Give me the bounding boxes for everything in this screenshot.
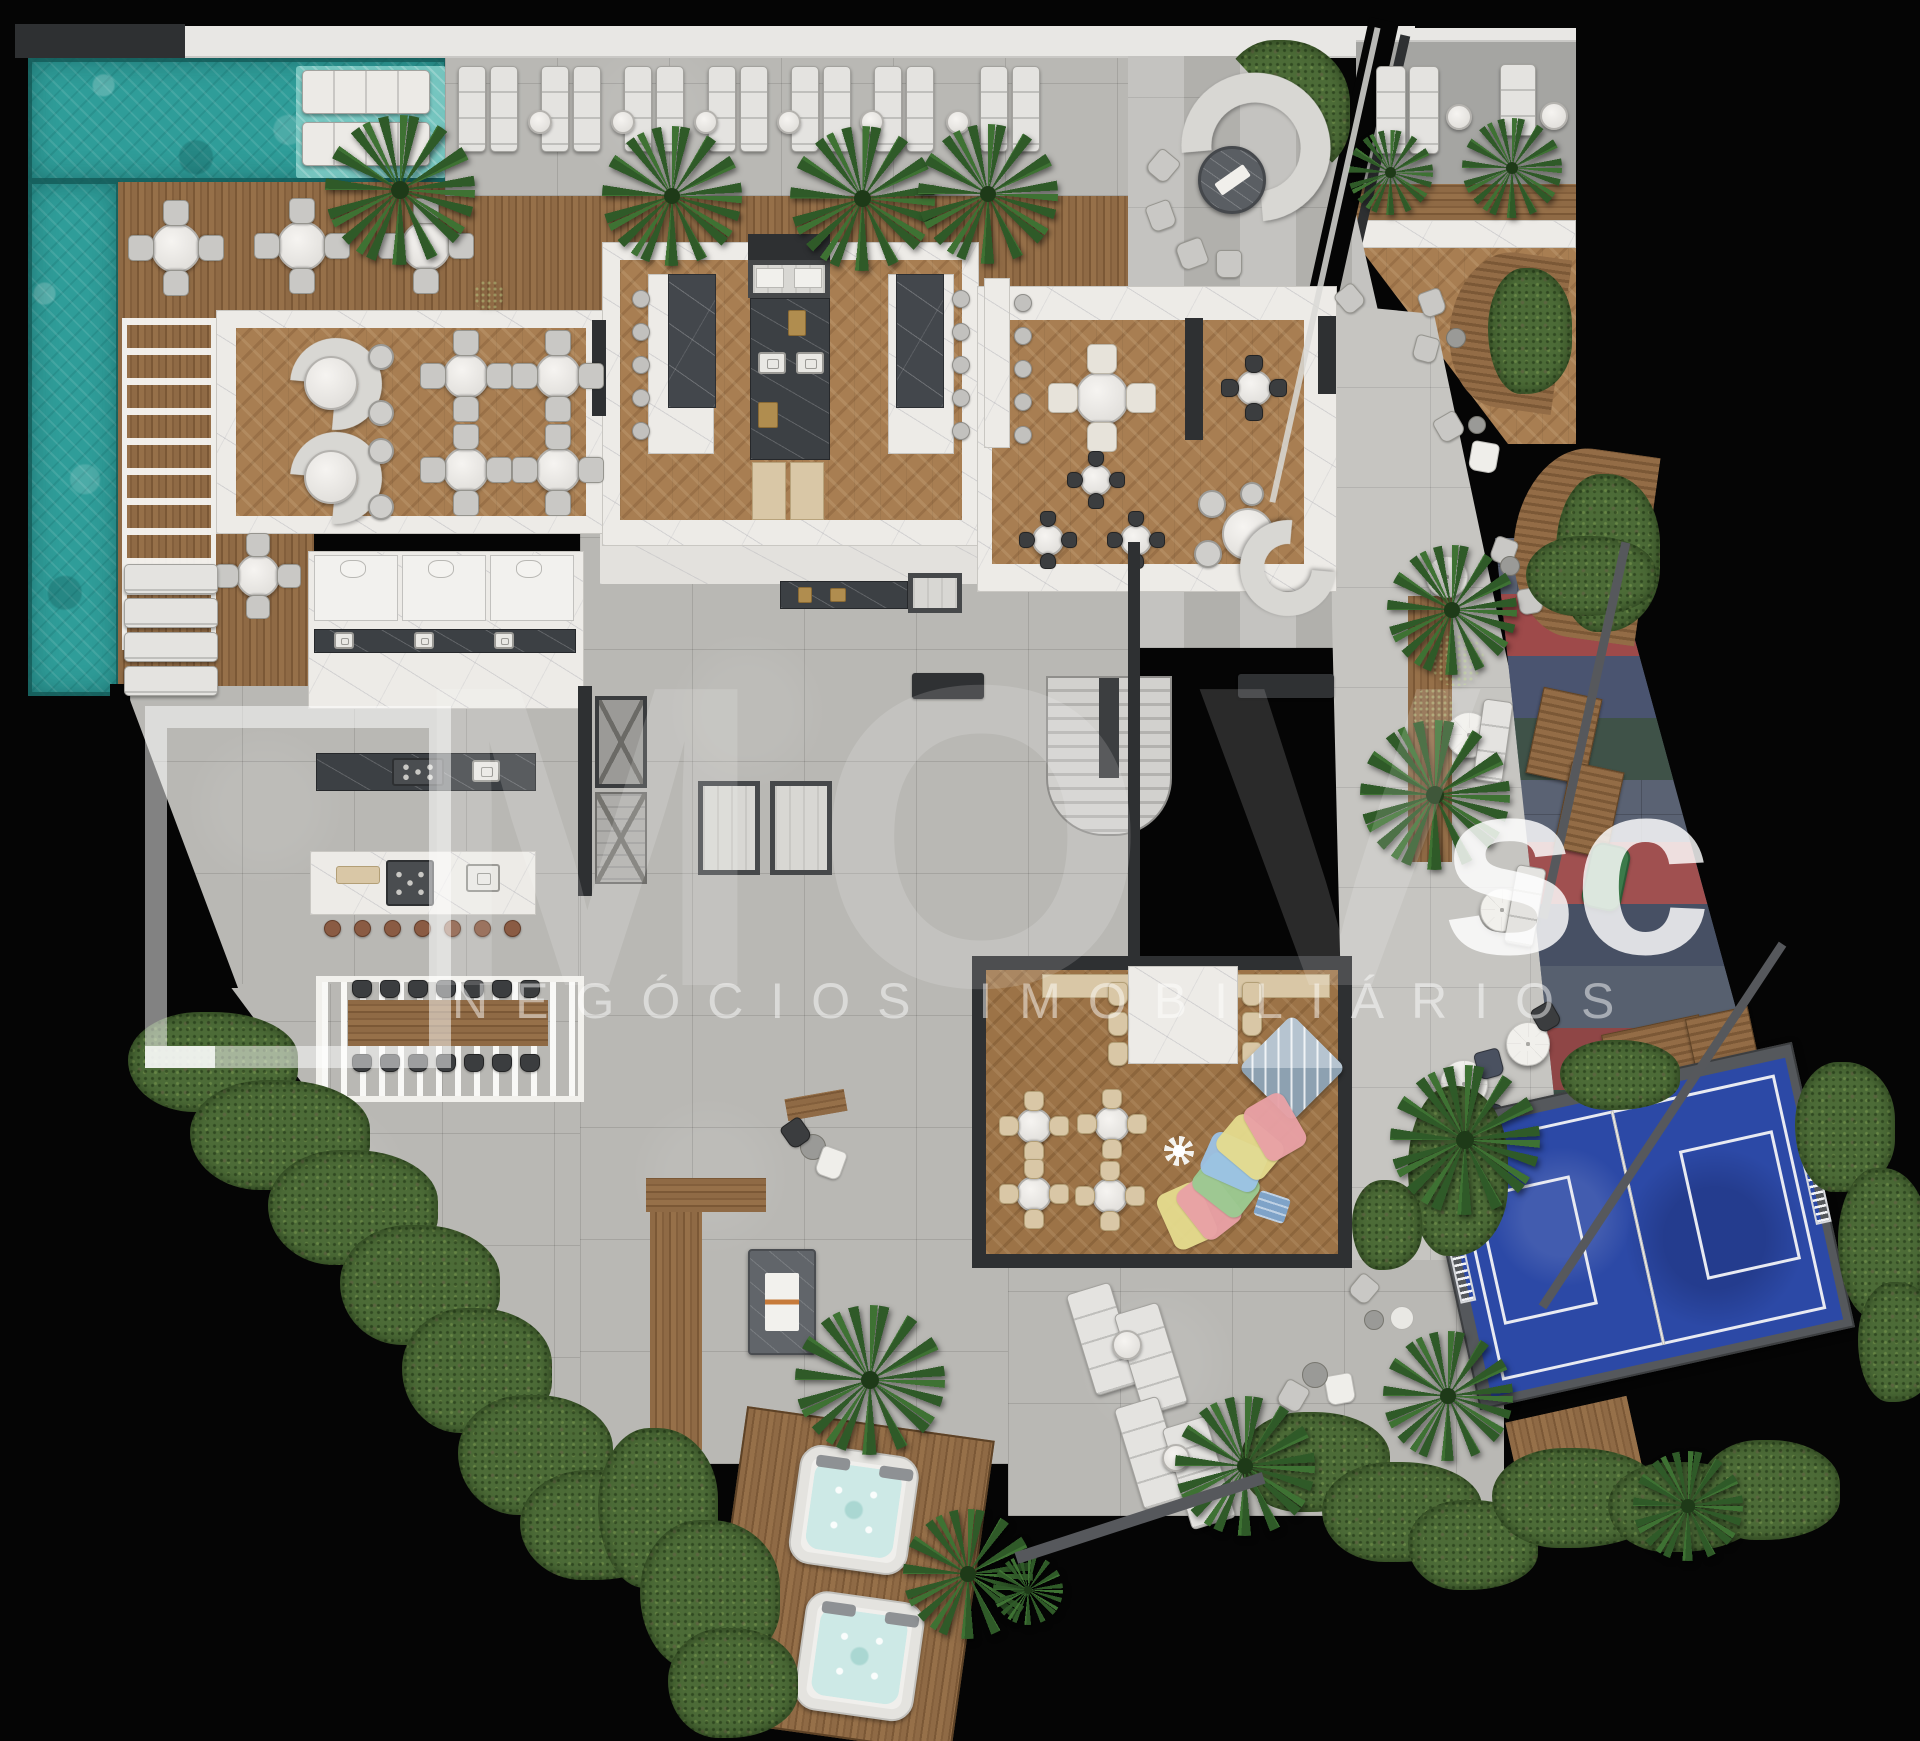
- chair: [1087, 344, 1117, 374]
- tub-chair: [1194, 540, 1222, 568]
- deck-lounger: [124, 564, 218, 594]
- cafe-set: [1236, 370, 1272, 406]
- chair: [1049, 1184, 1069, 1204]
- palm-tree: [1390, 1065, 1540, 1215]
- pool-lounger: [302, 70, 430, 114]
- pouf: [1446, 328, 1466, 348]
- chair: [464, 980, 484, 998]
- partition: [1318, 316, 1336, 394]
- kids-table: [1016, 1108, 1052, 1144]
- kids-table: [1092, 1178, 1128, 1214]
- chair: [277, 564, 301, 588]
- chair: [1100, 1161, 1120, 1181]
- bar-stool: [632, 356, 650, 374]
- dining-table: [304, 450, 358, 504]
- bench: [1108, 982, 1128, 1006]
- palm-tree: [602, 126, 742, 266]
- chair: [1024, 1091, 1044, 1111]
- chair: [1077, 1114, 1097, 1134]
- chair: [999, 1116, 1019, 1136]
- chair: [380, 1054, 400, 1072]
- chair: [408, 980, 428, 998]
- island-stool: [444, 920, 461, 937]
- palm-tree: [790, 126, 935, 271]
- chair: [1024, 1159, 1044, 1179]
- chair: [254, 233, 280, 259]
- chair: [413, 268, 439, 294]
- play-rug: [1164, 1136, 1194, 1166]
- side-table: [1446, 104, 1472, 130]
- chair: [246, 533, 270, 557]
- dining-west-floor: [236, 328, 586, 516]
- chair: [1100, 1211, 1120, 1231]
- palm-tree: [325, 115, 475, 265]
- chair: [380, 980, 400, 998]
- chair: [486, 457, 512, 483]
- bar-stool: [632, 422, 650, 440]
- bar-stool: [1014, 360, 1032, 378]
- chair: [1048, 383, 1078, 413]
- chair: [545, 424, 571, 450]
- chair: [1107, 532, 1123, 548]
- tub-chair: [368, 494, 394, 520]
- bar-accessories: [758, 402, 778, 428]
- chair: [1061, 532, 1077, 548]
- side-table: [1302, 1362, 1328, 1388]
- island-stool: [354, 920, 371, 937]
- palm-tree: [795, 1305, 945, 1455]
- planter-bench: [1238, 674, 1334, 698]
- palm-tree: [918, 124, 1058, 264]
- chair: [420, 457, 446, 483]
- dining-set: [443, 353, 489, 399]
- dining-set: [1075, 371, 1129, 425]
- bar-stool: [632, 389, 650, 407]
- chair: [578, 363, 604, 389]
- chair: [352, 980, 372, 998]
- chair: [999, 1184, 1019, 1204]
- bar-stool: [952, 290, 970, 308]
- chair: [1075, 1186, 1095, 1206]
- partition: [1185, 318, 1203, 440]
- core-wall: [1128, 542, 1140, 986]
- chair: [453, 396, 479, 422]
- deck-lounger: [124, 598, 218, 628]
- bar-stool: [1014, 327, 1032, 345]
- chair: [1221, 379, 1239, 397]
- chair: [1245, 355, 1263, 373]
- sink: [758, 352, 786, 374]
- chair: [1324, 1372, 1357, 1406]
- bar-stool: [952, 422, 970, 440]
- east-counter: [984, 278, 1010, 448]
- l-bench: [650, 1212, 702, 1450]
- sunbed: [573, 66, 601, 152]
- chair: [1019, 532, 1035, 548]
- palm-tree: [993, 1555, 1063, 1625]
- chair: [436, 1054, 456, 1072]
- tub-chair: [368, 344, 394, 370]
- bar-stool: [952, 356, 970, 374]
- chair: [545, 490, 571, 516]
- elevator-cab: [698, 781, 760, 875]
- chair: [492, 1054, 512, 1072]
- bar-stool: [1014, 426, 1032, 444]
- bar-accessories: [788, 310, 806, 336]
- chair: [512, 457, 538, 483]
- tub-chair: [1198, 490, 1226, 518]
- side-table: [1112, 1330, 1142, 1360]
- sunbed: [740, 66, 768, 152]
- chair: [420, 363, 446, 389]
- cooktop: [392, 758, 444, 786]
- chair: [128, 235, 154, 261]
- chair: [436, 980, 456, 998]
- chair: [1149, 532, 1165, 548]
- floor-plan: MOV sc NEGÓCIOS IMOBILIÁRIOS: [0, 0, 1920, 1741]
- palm-tree: [1383, 1331, 1513, 1461]
- chair: [464, 1054, 484, 1072]
- chair: [215, 564, 239, 588]
- chair: [1024, 1209, 1044, 1229]
- chair: [1088, 493, 1104, 509]
- vent: [756, 268, 784, 288]
- chair: [1102, 1089, 1122, 1109]
- bar-island-top: [896, 274, 944, 408]
- chair: [1067, 472, 1083, 488]
- tub-chair: [1240, 482, 1264, 506]
- pouf: [1390, 1306, 1414, 1330]
- hot-tub: [792, 1588, 928, 1724]
- palm-tree: [1387, 545, 1517, 675]
- elevator-cab: [770, 781, 832, 875]
- deck-dining-set: [151, 223, 201, 273]
- lobby-cabinet: [908, 573, 962, 613]
- bench: [1108, 1042, 1128, 1066]
- sunbed: [906, 66, 934, 152]
- pouf: [1364, 1310, 1384, 1330]
- chair: [1087, 422, 1117, 452]
- side-table: [528, 110, 552, 134]
- toilet: [428, 560, 454, 578]
- island-stool: [384, 920, 401, 937]
- dining-set: [443, 447, 489, 493]
- sunbed: [458, 66, 486, 152]
- chair: [352, 1054, 372, 1072]
- coffee-set: [830, 588, 846, 602]
- bench: [1108, 1012, 1128, 1036]
- side-table: [611, 110, 635, 134]
- toilet: [516, 560, 542, 578]
- sink: [414, 632, 434, 649]
- grass: [1488, 268, 1572, 394]
- chair: [545, 396, 571, 422]
- palm-tree: [1633, 1451, 1743, 1561]
- bench: [1242, 982, 1262, 1006]
- chair: [1024, 1141, 1044, 1161]
- core-wall: [578, 686, 592, 896]
- bar-stool: [952, 323, 970, 341]
- fire-pit-table: [1198, 146, 1266, 214]
- l-bench: [646, 1178, 766, 1212]
- side-table: [1540, 102, 1568, 130]
- grass: [668, 1628, 798, 1738]
- chair: [163, 270, 189, 296]
- chair: [1040, 553, 1056, 569]
- deck-dining-set: [236, 554, 280, 598]
- deck-lounger: [124, 632, 218, 662]
- chair: [545, 330, 571, 356]
- chair: [1468, 440, 1501, 474]
- dining-set: [535, 447, 581, 493]
- runner-mat: [752, 462, 786, 520]
- coffee-set: [798, 587, 812, 603]
- far-terrace-counter: [1356, 220, 1576, 248]
- chair: [289, 268, 315, 294]
- communal-table: [348, 1000, 548, 1046]
- chair: [1040, 511, 1056, 527]
- chair: [1128, 511, 1144, 527]
- sunbed: [490, 66, 518, 152]
- chair: [492, 980, 512, 998]
- chair: [408, 1054, 428, 1072]
- chair: [453, 330, 479, 356]
- grass: [1858, 1282, 1920, 1402]
- toilet: [340, 560, 366, 578]
- chair: [1088, 451, 1104, 467]
- grass: [1526, 536, 1656, 616]
- chair: [1125, 1186, 1145, 1206]
- bar-stool: [952, 389, 970, 407]
- main-stair: [1046, 676, 1172, 836]
- sink: [796, 352, 824, 374]
- chair: [163, 200, 189, 226]
- chair: [453, 424, 479, 450]
- chair: [1049, 1116, 1069, 1136]
- palm-tree: [1360, 720, 1510, 870]
- sink: [494, 632, 514, 649]
- cafe-set: [1032, 524, 1064, 556]
- runner-mat: [790, 462, 824, 520]
- chair: [289, 198, 315, 224]
- sink: [334, 632, 354, 649]
- cutting-board: [336, 866, 380, 884]
- chair: [1127, 1114, 1147, 1134]
- bar-stool: [632, 323, 650, 341]
- tub-chair: [368, 438, 394, 464]
- roof-edge-cap: [15, 24, 185, 58]
- sunbed: [791, 66, 819, 152]
- kids-table: [1094, 1106, 1130, 1142]
- palm-tree: [1348, 130, 1433, 215]
- chair: [1102, 1139, 1122, 1159]
- chair: [1216, 250, 1242, 278]
- chair: [512, 363, 538, 389]
- chair: [486, 363, 512, 389]
- chair: [578, 457, 604, 483]
- cafe-set: [1080, 464, 1112, 496]
- bar-stool: [632, 290, 650, 308]
- elevator-shaft: [595, 696, 647, 788]
- pouf: [1468, 416, 1486, 434]
- side-table: [777, 110, 801, 134]
- chair: [1245, 403, 1263, 421]
- dining-set: [535, 353, 581, 399]
- service-stair: [595, 792, 647, 884]
- craft-table: [1128, 966, 1238, 1064]
- palm-tree: [1462, 118, 1562, 218]
- pool-arm: [28, 180, 120, 696]
- island-stool: [414, 920, 431, 937]
- chair: [1269, 379, 1287, 397]
- bar-stool: [1014, 294, 1032, 312]
- island-sink: [466, 864, 500, 892]
- roof-edge-strip: [15, 26, 1415, 58]
- kids-table: [1016, 1176, 1052, 1212]
- tub-chair: [368, 400, 394, 426]
- island-stool: [504, 920, 521, 937]
- vent: [794, 268, 822, 288]
- palm-tree: [1175, 1396, 1315, 1536]
- grass: [1560, 1040, 1680, 1110]
- island-stool: [324, 920, 341, 937]
- chair: [520, 1054, 540, 1072]
- deck-lounger: [124, 666, 218, 696]
- island-cooktop: [386, 860, 434, 906]
- hot-tub: [786, 1442, 922, 1578]
- chair: [1126, 383, 1156, 413]
- deck-dining-set: [277, 221, 327, 271]
- chair: [1109, 472, 1125, 488]
- dining-table: [304, 356, 358, 410]
- island-stool: [474, 920, 491, 937]
- lobby-bench: [912, 673, 984, 699]
- bar-stool: [1014, 393, 1032, 411]
- chair: [520, 980, 540, 998]
- chair: [246, 595, 270, 619]
- chair: [198, 235, 224, 261]
- chair: [453, 490, 479, 516]
- bench: [1242, 1012, 1262, 1036]
- sunbed: [541, 66, 569, 152]
- bar-island-top: [668, 274, 716, 408]
- sink: [472, 760, 500, 782]
